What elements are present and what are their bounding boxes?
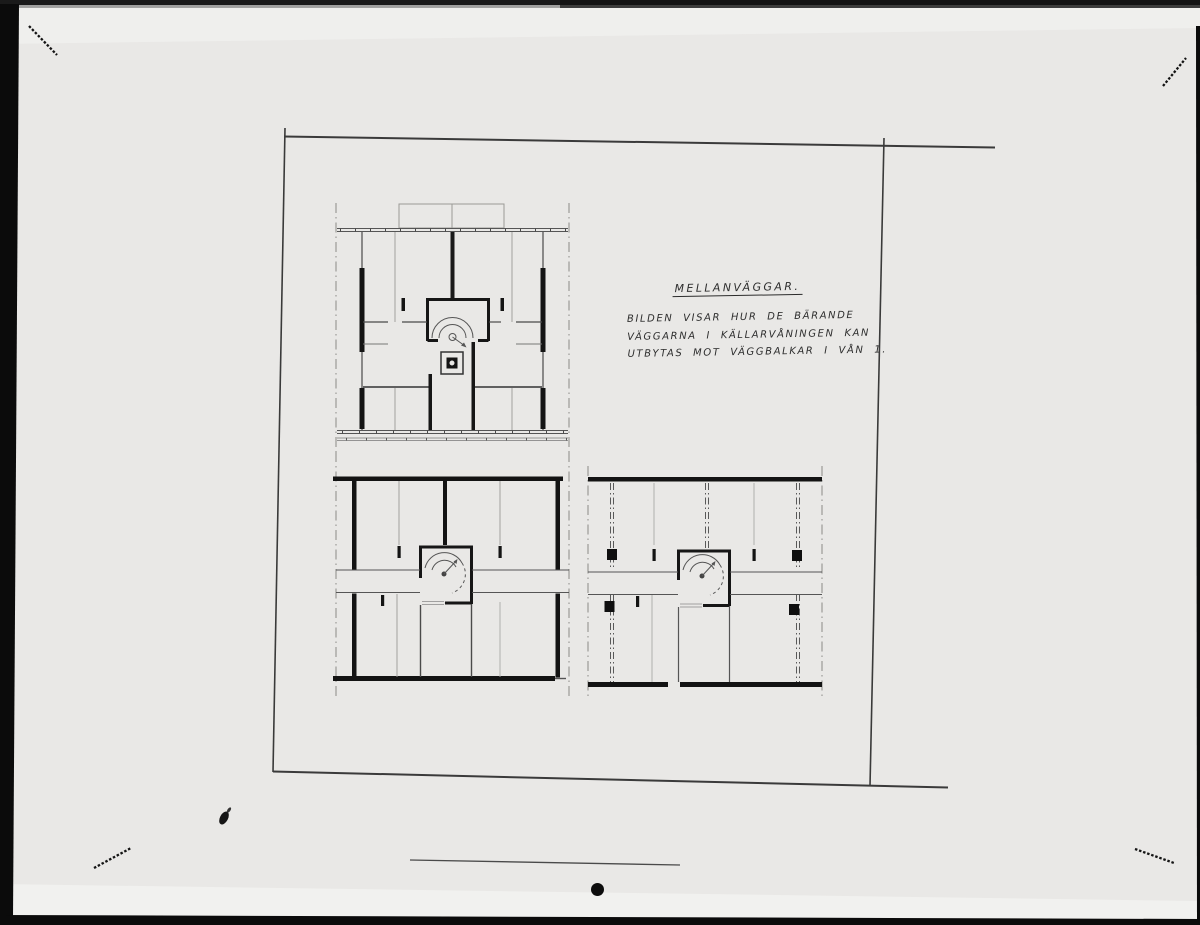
film-edges [0,0,1200,925]
floor1-plan [336,203,569,452]
bottom-rule-line [410,860,680,865]
exterior-wall-bottom-left [588,682,668,687]
photo-blemishes [217,807,680,896]
chimney [441,352,463,374]
ink-dot [591,883,604,896]
registration-marks [29,26,1186,868]
annotation-title: MELLANVÄGGAR. [672,280,802,297]
drawing-graphics [0,0,1200,925]
exterior-wall-top [588,477,822,482]
corner-mark-top-right [1163,58,1186,86]
exterior-wall-bottom [333,676,555,681]
fan-stair [683,555,723,595]
balcony-rooms [399,204,504,228]
corner-mark-bottom-left [94,848,131,868]
annotation-block: MELLANVÄGGAR. BILDEN VISAR HUR DE BÄRAND… [621,279,854,364]
exterior-wall-bottom-right [680,682,822,687]
film-edge-left [0,4,19,918]
spiral-stair [432,318,473,348]
photo-of-architectural-drawing: MELLANVÄGGAR. BILDEN VISAR HUR DE BÄRAND… [0,0,1200,925]
horizontal-walls [363,322,542,387]
corridor [588,572,822,595]
basement-plan-bearing-walls [333,452,569,700]
fan-stair [425,553,465,593]
corner-mark-bottom-right [1135,849,1174,863]
stair-enclosure [426,298,490,341]
beam-lines [611,483,800,682]
top-wall-band [337,229,568,232]
paper-tone-bands [0,7,1200,919]
film-edge-right [1196,26,1200,925]
exterior-wall-top [333,477,563,482]
ink-blot [217,810,231,826]
corridor [336,570,569,593]
central-wall [451,232,455,298]
drawing-frame [273,128,995,788]
bottom-wall-band [337,431,568,441]
basement-plan-wall-beams [588,466,822,700]
